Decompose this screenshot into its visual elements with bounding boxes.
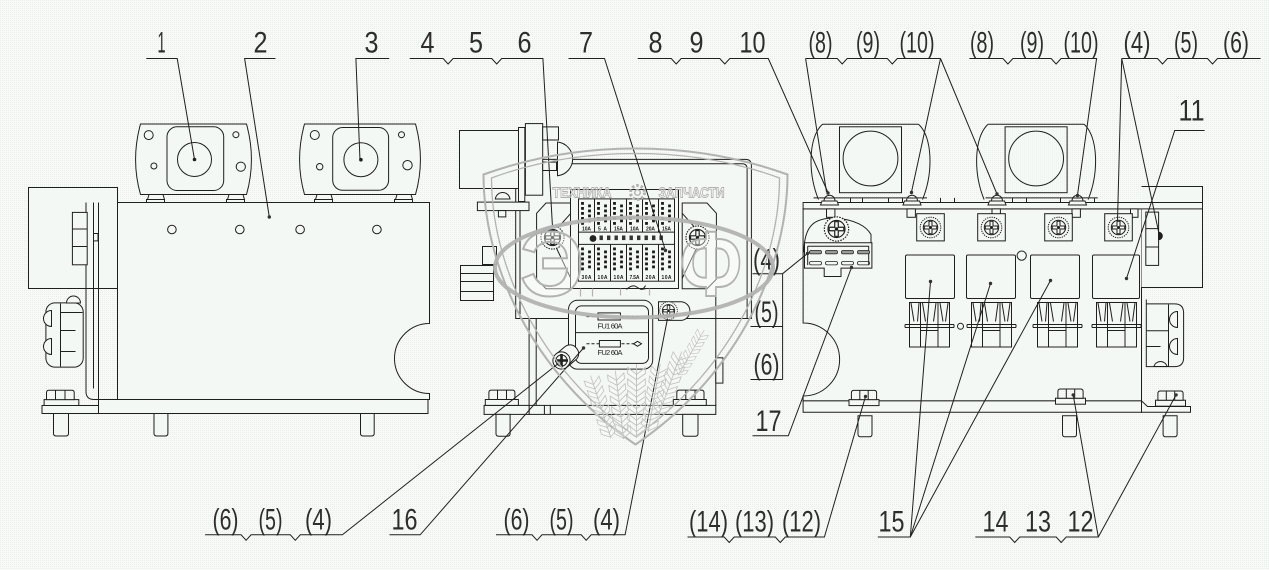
svg-text:ЗАПЧАСТИ: ЗАПЧАСТИ	[659, 186, 725, 202]
svg-text:Э: Э	[520, 214, 584, 316]
svg-text:(10): (10)	[900, 27, 935, 60]
svg-text:12: 12	[1068, 506, 1094, 539]
svg-text:(13): (13)	[735, 506, 774, 539]
svg-text:(6): (6)	[504, 504, 530, 537]
svg-text:1: 1	[158, 27, 166, 60]
svg-text:(8): (8)	[970, 27, 994, 60]
svg-text:10A: 10A	[630, 227, 639, 233]
svg-text:(9): (9)	[1020, 27, 1044, 60]
svg-text:(14): (14)	[689, 506, 728, 539]
svg-text:10A: 10A	[598, 275, 608, 281]
svg-text:13: 13	[1025, 506, 1051, 539]
svg-text:11: 11	[1179, 95, 1205, 128]
svg-text:7.5A: 7.5A	[630, 275, 640, 281]
svg-text:(6): (6)	[754, 349, 780, 382]
svg-text:5: 5	[469, 27, 483, 60]
svg-text:(4): (4)	[593, 504, 620, 537]
svg-text:8: 8	[649, 27, 663, 60]
svg-text:(4): (4)	[305, 504, 332, 537]
svg-text:(4): (4)	[1124, 27, 1151, 60]
svg-text:(8): (8)	[809, 27, 833, 60]
svg-text:(9): (9)	[856, 27, 880, 60]
svg-text:14: 14	[983, 506, 1009, 539]
svg-text:16: 16	[392, 504, 418, 537]
svg-text:10A: 10A	[614, 275, 624, 281]
svg-text:15A: 15A	[662, 227, 671, 233]
svg-text:6: 6	[518, 27, 532, 60]
svg-text:20A: 20A	[646, 227, 655, 233]
svg-text:4: 4	[421, 27, 435, 60]
svg-text:2: 2	[254, 27, 268, 60]
svg-text:15A: 15A	[614, 227, 623, 233]
svg-text:(6): (6)	[213, 504, 239, 537]
svg-text:7: 7	[579, 27, 593, 60]
svg-text:(5): (5)	[259, 504, 283, 537]
svg-text:10: 10	[740, 27, 766, 60]
svg-text:(12): (12)	[782, 506, 821, 539]
svg-text:(5): (5)	[550, 504, 574, 537]
svg-text:(10): (10)	[1064, 27, 1099, 60]
svg-text:17: 17	[756, 405, 782, 438]
svg-text:FU1 60A: FU1 60A	[598, 322, 623, 331]
svg-text:ТЕХНИКА: ТЕХНИКА	[553, 186, 612, 202]
svg-text:15: 15	[879, 506, 905, 539]
svg-text:5A: 5A	[598, 227, 607, 233]
svg-text:(6): (6)	[1223, 27, 1249, 60]
svg-text:Ф: Ф	[680, 214, 742, 316]
svg-text:3: 3	[365, 27, 379, 60]
svg-text:10A: 10A	[662, 275, 672, 281]
svg-text:20A: 20A	[646, 275, 656, 281]
svg-text:9: 9	[690, 27, 704, 60]
svg-text:FU2 60A: FU2 60A	[598, 348, 623, 357]
svg-text:(5): (5)	[1174, 27, 1198, 60]
